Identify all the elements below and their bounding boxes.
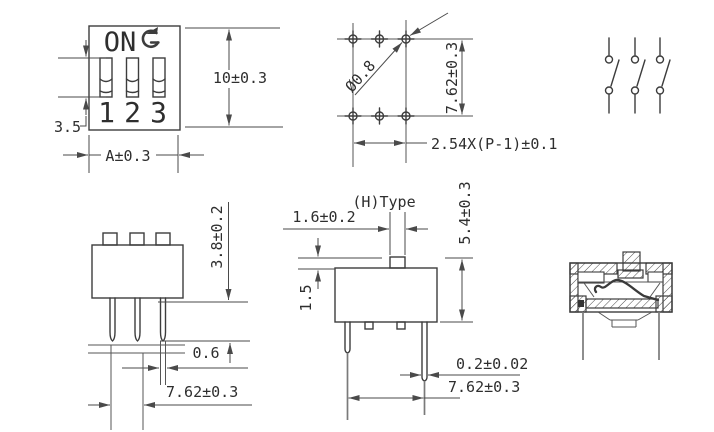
- dim-hole-diameter-label: Ø0.8: [342, 57, 380, 96]
- position-label-1: 1: [98, 96, 115, 129]
- dim-hole-diameter: Ø0.8: [342, 13, 448, 96]
- dim-overall-height-label: 5.4±0.3: [456, 181, 474, 244]
- dim-h-pin-span: 7.62±0.3: [349, 378, 521, 398]
- dim-actuator-width-label: 1.6±0.2: [292, 208, 355, 226]
- pin-1: [110, 298, 115, 341]
- dim-h-pin-span-label: 7.62±0.3: [448, 378, 520, 396]
- cavity-lines: [578, 282, 663, 297]
- h-stub-2: [397, 322, 405, 329]
- switch-symbol-3: [657, 38, 671, 113]
- dim-body-height: 10±0.3: [185, 28, 283, 127]
- dim-body-width-label: A±0.3: [105, 147, 150, 165]
- h-type-view: (H)Type 1.6±0.2 1.5: [283, 181, 528, 420]
- pin-2: [135, 298, 140, 341]
- actuator-tab-2: [130, 233, 144, 245]
- h-actuator: [390, 257, 405, 268]
- dim-actuator-protrusion: 1.5: [297, 238, 382, 312]
- dim-pin-thickness-label: 0.2±0.02: [456, 355, 528, 373]
- h-pin-right: [422, 322, 427, 415]
- actuator-tab-1: [103, 233, 117, 245]
- dim-side-pin-span-label: 7.62±0.3: [166, 383, 238, 401]
- technical-drawing-canvas: ON 1 2 3 3.5: [0, 0, 714, 432]
- dim-body-width: A±0.3: [63, 135, 204, 173]
- h-body-outline: [335, 268, 437, 322]
- switch-symbol-1: [606, 38, 620, 113]
- dim-overall-height: 5.4±0.3: [440, 181, 474, 322]
- dim-actuator-width: 1.6±0.2: [283, 208, 428, 255]
- bottom-boss: [598, 312, 652, 327]
- dim-pitch: 2.54X(P-1)±0.1: [354, 135, 557, 153]
- dim-side-body-height: 3.8±0.2: [158, 202, 248, 302]
- switch-slot-3: [153, 58, 165, 97]
- side-view: 3.8±0.2 0.6 7.62±0.3: [88, 202, 252, 430]
- on-label: ON: [104, 27, 137, 58]
- h-stub-1: [365, 322, 373, 329]
- pcb-hole-layout-view: Ø0.8 7.62±0.3 2.54X(P-1)±0.1: [337, 13, 557, 167]
- pcb-board-lines: [88, 345, 185, 353]
- housing-slot-right: [648, 272, 663, 282]
- h-pin-left: [345, 322, 350, 420]
- dim-side-pin-span: 7.62±0.3: [88, 345, 252, 430]
- switch-slot-1: [100, 58, 112, 97]
- housing-slot-left: [578, 272, 604, 283]
- dim-pin-width: 0.6: [122, 341, 250, 385]
- dim-pin-thickness: 0.2±0.02: [400, 355, 528, 375]
- dim-slot-label: 3.5: [54, 118, 81, 136]
- circuit-symbol-view: [606, 38, 671, 113]
- dim-body-height-label: 10±0.3: [213, 69, 267, 87]
- cross-section-view: [570, 252, 672, 360]
- dim-actuator-protrusion-label: 1.5: [297, 284, 315, 311]
- front-view: ON 1 2 3 3.5: [54, 26, 283, 173]
- dim-pitch-label: 2.54X(P-1)±0.1: [431, 135, 557, 153]
- switch-slot-2: [127, 58, 139, 97]
- dim-row-spacing-label: 7.62±0.3: [443, 42, 461, 114]
- dim-pin-width-label: 0.6: [192, 344, 219, 362]
- dim-row-spacing: 7.62±0.3: [443, 41, 462, 115]
- switch-symbol-2: [632, 38, 646, 113]
- technical-drawing-page: ON 1 2 3 3.5: [0, 0, 714, 432]
- pin-3: [161, 298, 166, 341]
- position-label-2: 2: [124, 96, 141, 129]
- dim-side-body-height-label: 3.8±0.2: [208, 205, 226, 268]
- actuator-tab-3: [156, 233, 170, 245]
- position-label-3: 3: [150, 96, 167, 129]
- brand-logo-icon: [143, 27, 159, 47]
- contact-anchor: [578, 300, 584, 307]
- h-type-title: (H)Type: [352, 193, 415, 211]
- body-outline: [92, 245, 183, 298]
